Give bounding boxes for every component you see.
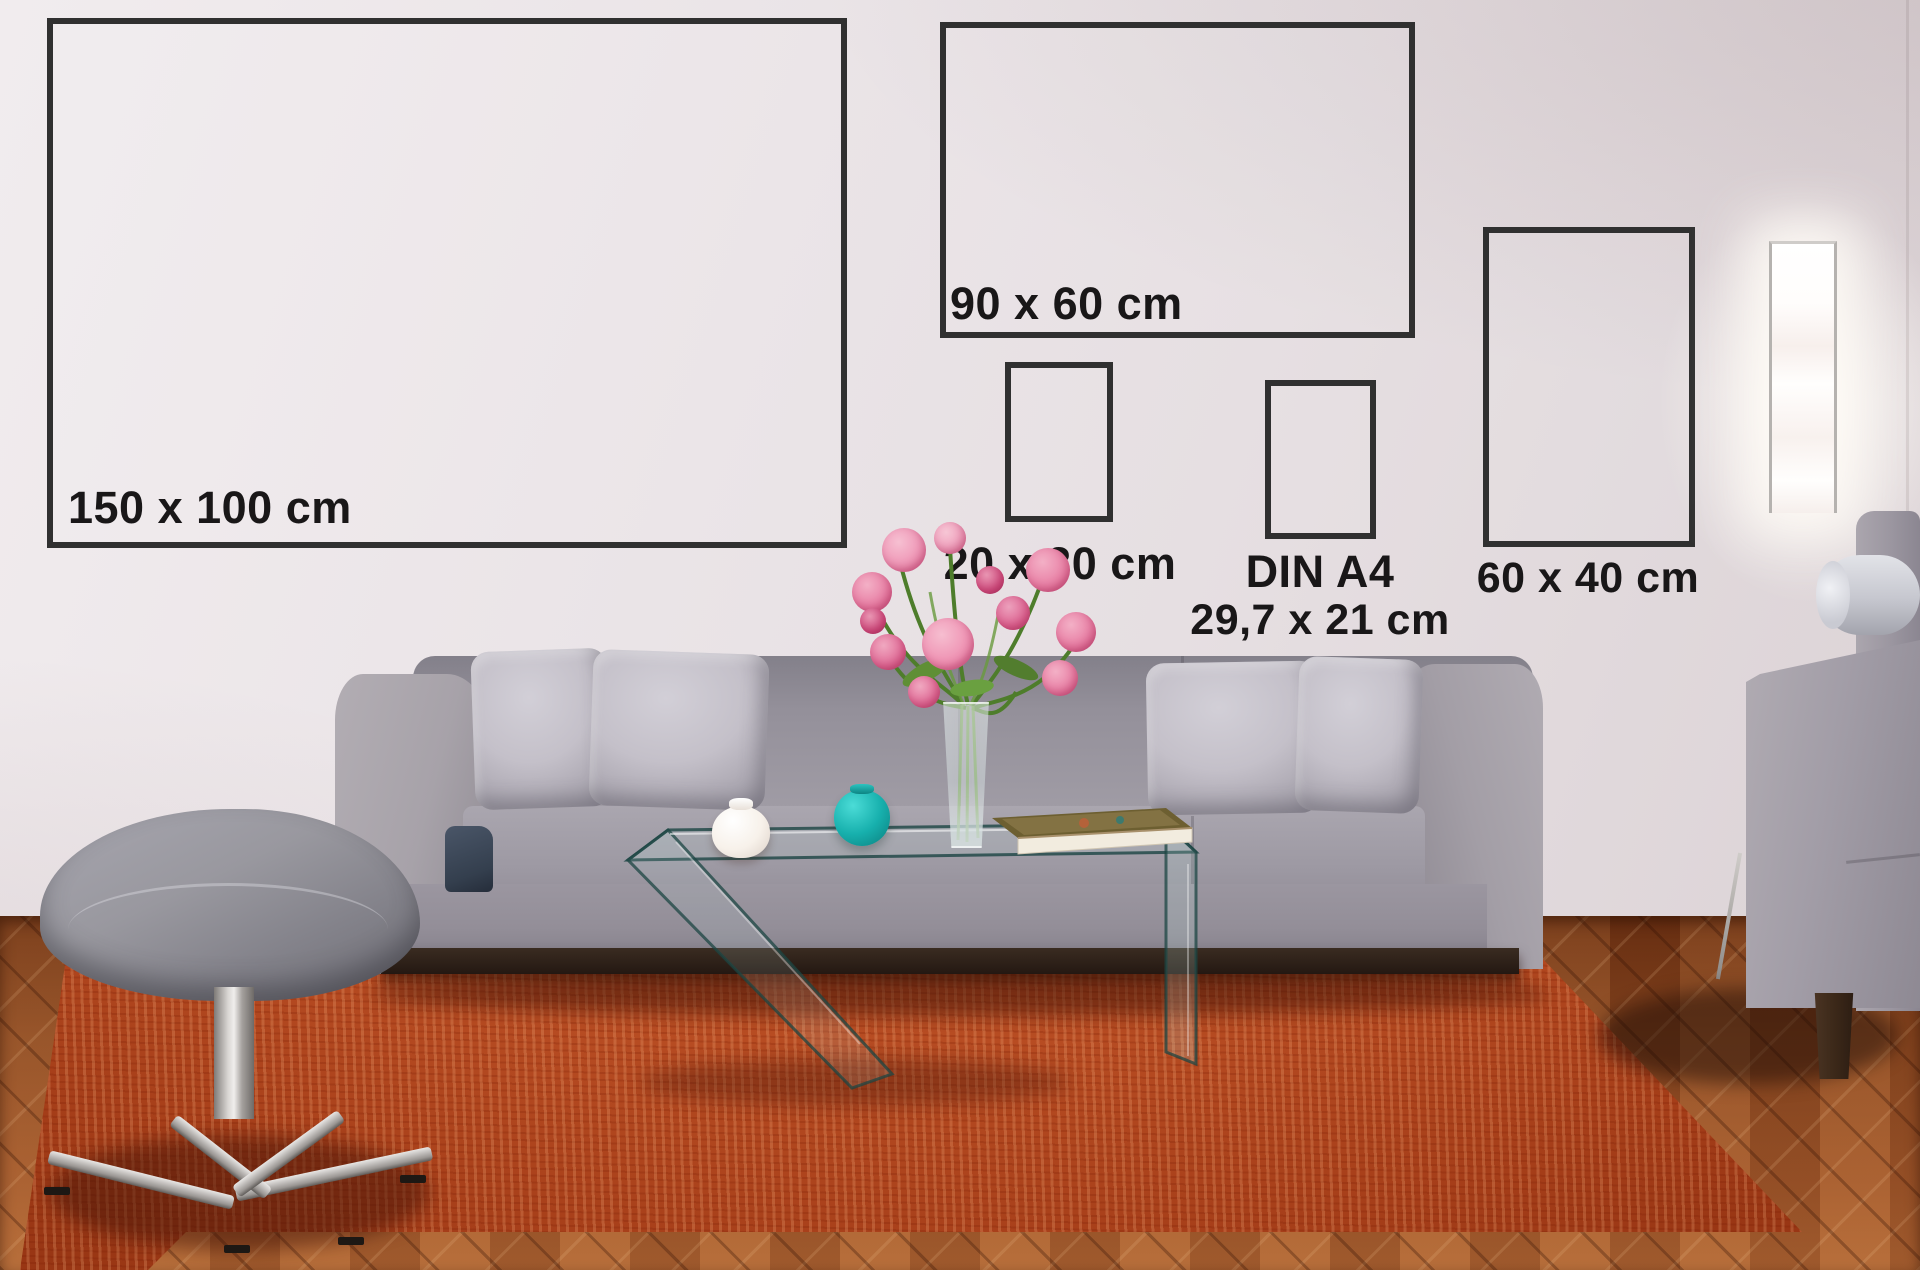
size-label-din-a4-dimensions: 29,7 x 21 cm (1180, 597, 1460, 643)
flower-blossom (1026, 548, 1070, 592)
size-label-din-a4-title: DIN A4 (1180, 548, 1460, 597)
ottoman-leg (47, 1150, 235, 1210)
white-vase (712, 806, 770, 858)
flower-blossom (1042, 660, 1078, 696)
right-sofa-armrest (1746, 640, 1920, 1008)
navy-throw-cushion (445, 826, 493, 892)
ottoman-foot (338, 1237, 364, 1245)
frame-20x30 (1005, 362, 1113, 522)
flower-blossom (922, 618, 974, 670)
ottoman-seam (68, 883, 388, 976)
size-label-60x40: 60 x 40 cm (1468, 554, 1708, 603)
flower-blossom (908, 676, 940, 708)
frame-din-a4 (1265, 380, 1376, 539)
flower-blossom (882, 528, 926, 572)
frame-60x40 (1483, 227, 1695, 547)
living-room-poster-size-scene: 150 x 100 cm 90 x 60 cm 20 x 30 cm DIN A… (0, 0, 1920, 1270)
size-label-din-a4: DIN A4 29,7 x 21 cm (1180, 548, 1460, 643)
right-sofa-bolster-pillow (1820, 555, 1920, 635)
teal-vase (834, 790, 890, 846)
flower-blossom (1056, 612, 1096, 652)
floor-lamp (1769, 241, 1837, 513)
size-label-90x60: 90 x 60 cm (950, 278, 1183, 330)
ottoman-foot (224, 1245, 250, 1253)
frame-150x100 (47, 18, 847, 548)
flower-blossom (852, 572, 892, 612)
flower-blossom (934, 522, 966, 554)
ottoman-pedestal (214, 987, 254, 1119)
flower-blossom (870, 634, 906, 670)
sofa-pillow (588, 649, 769, 811)
flower-blossom (996, 596, 1030, 630)
ottoman-foot (44, 1187, 70, 1195)
flower-blossom (976, 566, 1004, 594)
ottoman-foot (400, 1175, 426, 1183)
ottoman-stool (38, 805, 430, 1255)
right-sofa (1740, 505, 1920, 1085)
flower-blossom (860, 608, 886, 634)
sofa-pillow (1294, 656, 1423, 814)
size-label-150x100: 150 x 100 cm (68, 482, 352, 534)
